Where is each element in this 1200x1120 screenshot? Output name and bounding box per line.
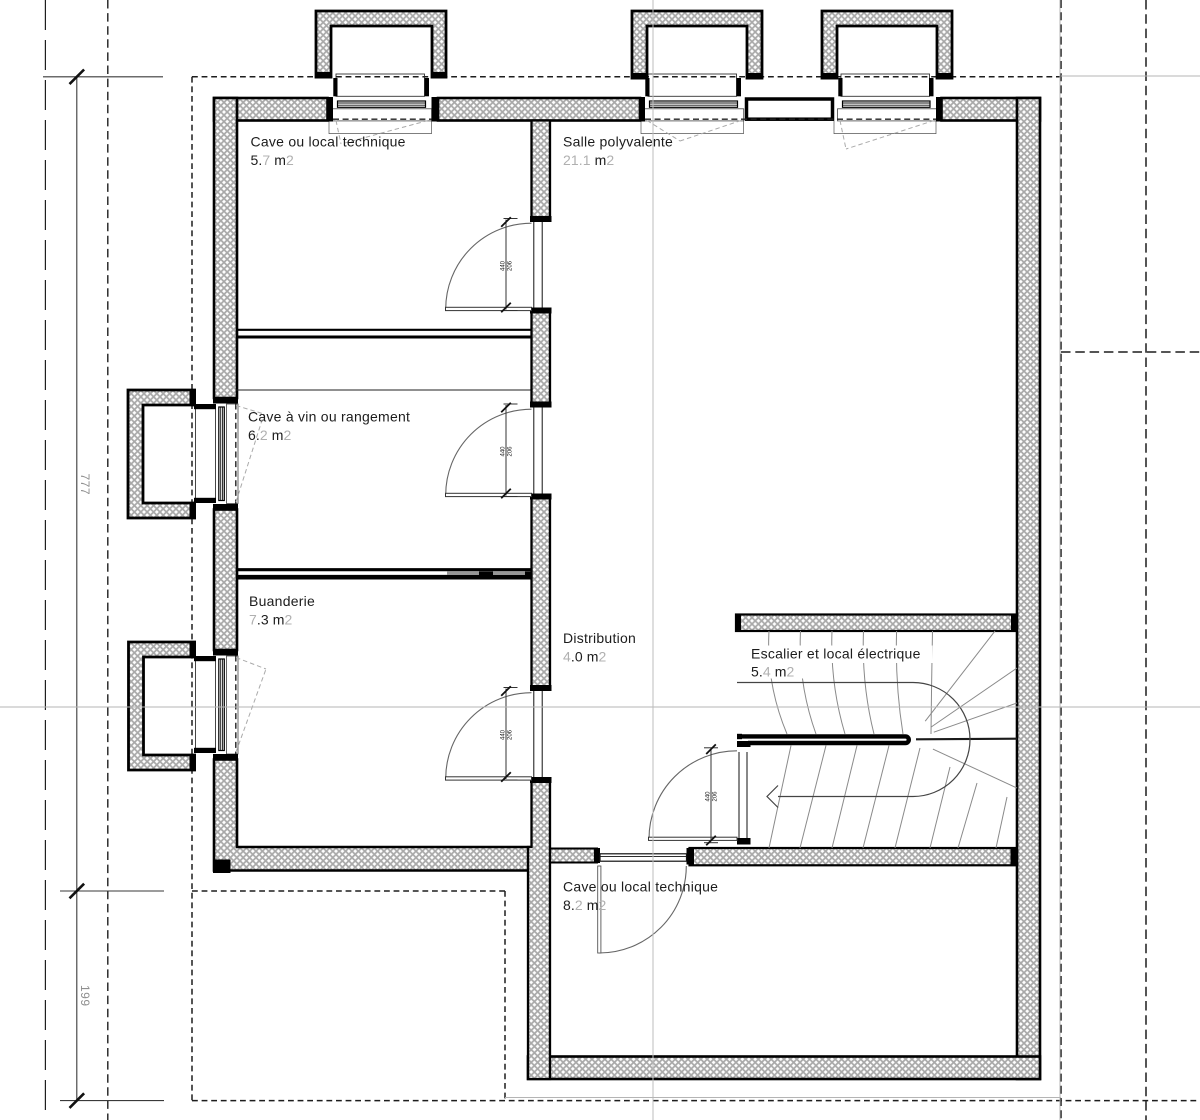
svg-text:5.7 m2: 5.7 m2: [251, 152, 295, 168]
svg-text:Cave ou local technique: Cave ou local technique: [563, 879, 718, 895]
svg-text:21.1 m2: 21.1 m2: [563, 152, 614, 168]
svg-text:440: 440: [501, 729, 507, 740]
svg-text:6.2 m2: 6.2 m2: [248, 427, 292, 443]
svg-text:206: 206: [508, 729, 514, 740]
svg-text:440: 440: [501, 260, 507, 271]
svg-text:Distribution: Distribution: [563, 630, 636, 646]
svg-text:8.2 m2: 8.2 m2: [563, 897, 607, 913]
svg-text:5.4 m2: 5.4 m2: [751, 663, 795, 679]
svg-text:Cave à vin ou rangement: Cave à vin ou rangement: [248, 409, 410, 425]
svg-text:777: 777: [78, 474, 92, 496]
svg-text:Buanderie: Buanderie: [249, 593, 315, 609]
svg-text:199: 199: [78, 985, 92, 1007]
svg-text:Escalier et local électrique: Escalier et local électrique: [751, 646, 921, 662]
svg-text:4.0 m2: 4.0 m2: [563, 648, 607, 664]
svg-text:206: 206: [508, 260, 514, 271]
svg-text:Salle polyvalente: Salle polyvalente: [563, 134, 673, 150]
svg-text:440: 440: [706, 791, 712, 802]
svg-text:206: 206: [713, 791, 719, 802]
svg-text:206: 206: [508, 446, 514, 457]
svg-text:440: 440: [501, 446, 507, 457]
svg-text:7.3 m2: 7.3 m2: [249, 611, 293, 627]
svg-text:Cave ou local technique: Cave ou local technique: [251, 134, 406, 150]
